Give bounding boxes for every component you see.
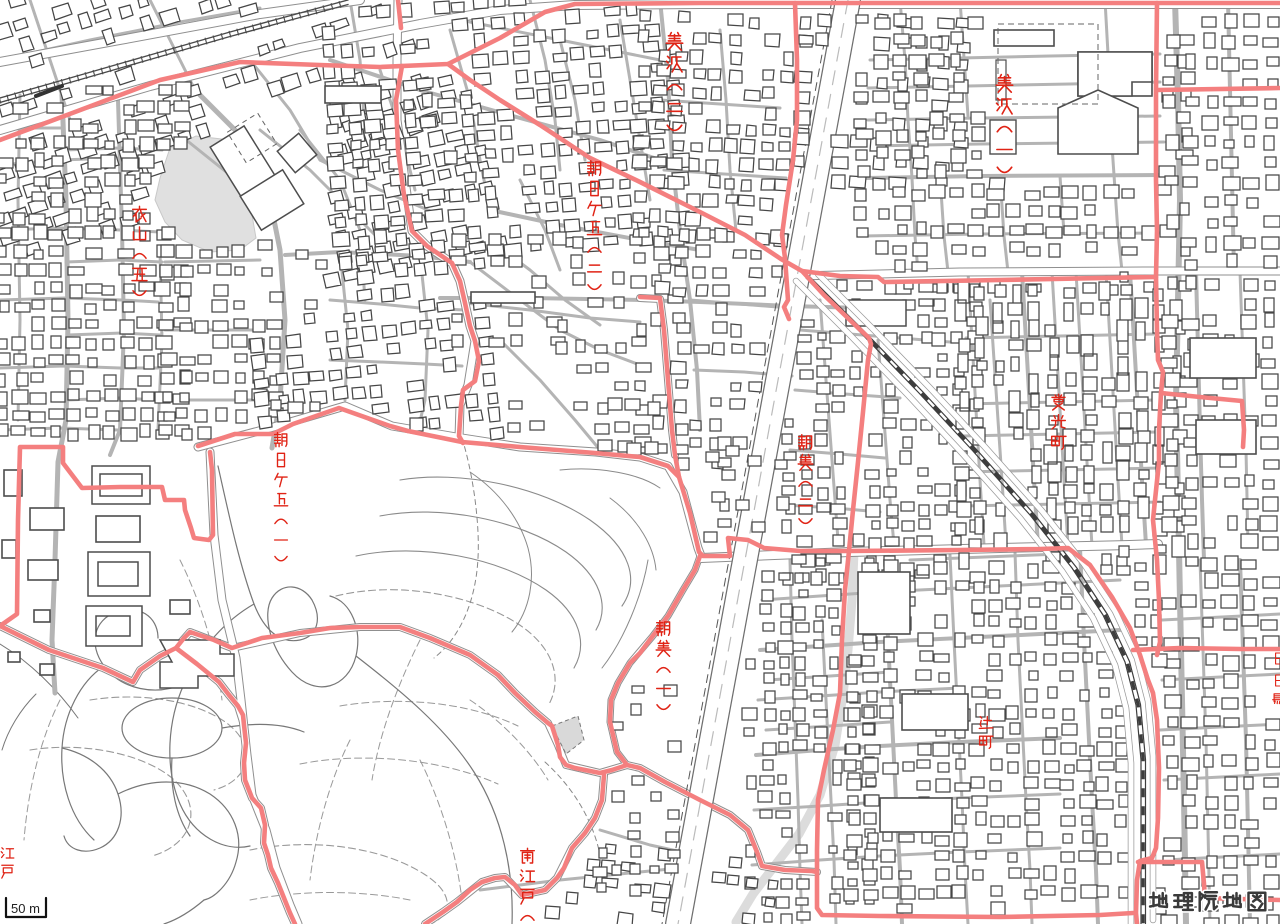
svg-text:50 m: 50 m xyxy=(11,901,40,916)
